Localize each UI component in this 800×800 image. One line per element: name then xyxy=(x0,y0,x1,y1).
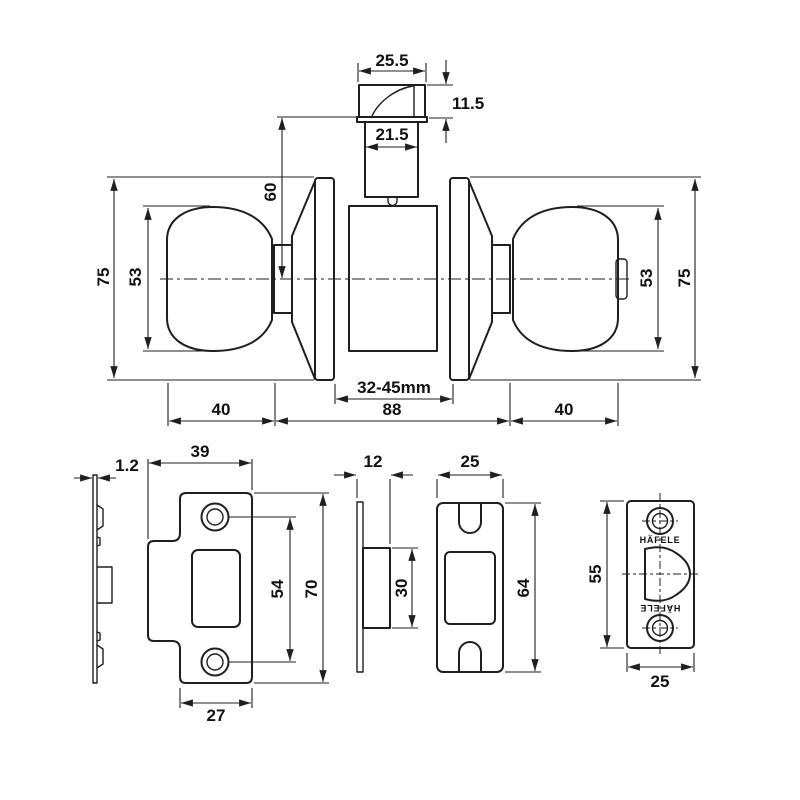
dim-label-left-knob: 53 xyxy=(126,268,145,287)
dim-label-latch-depth: 12 xyxy=(364,452,383,471)
dim-label-strike-hole-spacing: 54 xyxy=(268,579,287,598)
dim-label-strike-thickness: 1.2 xyxy=(115,456,139,475)
strike-screw-hole-bottom xyxy=(202,649,229,676)
dim-label-plate-width: 25 xyxy=(651,672,670,691)
drawing-page: 25.5 11.5 21.5 60 75 53 53 75 32-45mm 40… xyxy=(0,0,800,800)
dim-label-right-knob: 53 xyxy=(637,269,656,288)
dim-label-strike-lip-width: 27 xyxy=(207,706,226,725)
dim-label-plate-height: 55 xyxy=(586,565,605,584)
strike-screw-hole-top xyxy=(202,504,229,531)
dim-label-strike-height: 70 xyxy=(302,580,321,599)
dim-label-stem-width: 21.5 xyxy=(375,125,408,144)
drive-in-plate-dimensions xyxy=(600,501,694,672)
strike-plate-side-tabs xyxy=(97,505,112,668)
faceplate-notch-top xyxy=(459,503,481,533)
dim-label-faceplate-width: 25 xyxy=(461,452,480,471)
strike-plate-views xyxy=(93,475,252,683)
left-rose-cone xyxy=(292,181,315,379)
dim-label-strike-width: 39 xyxy=(191,442,210,461)
dim-label-faceplate-height: 64 xyxy=(514,578,533,597)
dim-label-right-overall: 75 xyxy=(675,269,694,288)
latch-bolt-head xyxy=(359,85,425,117)
dim-label-backset: 60 xyxy=(261,183,280,202)
strike-screw-hole-top-inner xyxy=(207,509,223,525)
dim-label-left-projection: 40 xyxy=(212,400,231,419)
strike-plate-side xyxy=(93,475,97,683)
spindle-hub xyxy=(388,197,397,206)
latch-bolt-curve xyxy=(372,86,413,116)
dim-label-door-range: 32-45mm xyxy=(357,378,431,397)
door-knob-technical-drawing: 25.5 11.5 21.5 60 75 53 53 75 32-45mm 40… xyxy=(0,0,800,800)
strike-latch-cutout xyxy=(192,550,240,627)
dim-label-left-overall: 75 xyxy=(94,268,113,287)
faceplate-front xyxy=(437,503,503,672)
faceplate-notch-bottom xyxy=(459,642,481,672)
dim-label-chassis-length: 88 xyxy=(383,400,402,419)
right-rose-cone xyxy=(469,181,492,379)
latch-case-views xyxy=(357,502,503,672)
dim-label-bolt-width: 25.5 xyxy=(375,51,408,70)
drive-in-plate-centerlines xyxy=(622,493,699,656)
latch-case-side xyxy=(363,548,390,628)
dim-label-right-projection: 40 xyxy=(555,400,574,419)
brand-text-top: HÄFELE xyxy=(640,535,681,545)
dim-label-latch-case-height: 30 xyxy=(392,579,411,598)
strike-plate-front xyxy=(148,493,252,683)
faceplate-cutout xyxy=(445,552,495,624)
strike-screw-hole-bottom-inner xyxy=(207,654,223,670)
dim-label-bolt-height: 11.5 xyxy=(452,94,484,113)
brand-text-bottom: HÄFELE xyxy=(640,603,681,613)
knobset-dimensions xyxy=(107,60,701,426)
